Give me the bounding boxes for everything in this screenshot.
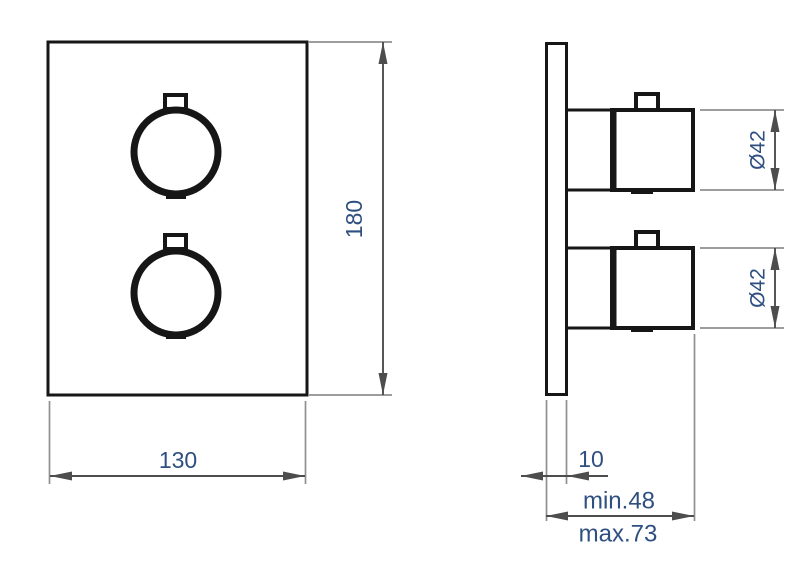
top-knob-front-bottom-notch bbox=[166, 193, 186, 199]
arrow-right-icon bbox=[672, 512, 694, 521]
depth-max-label: max.73 bbox=[579, 520, 658, 547]
arrow-left-icon bbox=[567, 472, 589, 481]
wall-plate-profile bbox=[547, 44, 567, 395]
front-width-label: 130 bbox=[159, 447, 197, 473]
bottom-knob-side-bottom-notch bbox=[631, 326, 653, 332]
front-width-dimension: 130 bbox=[50, 401, 306, 484]
technical-drawing-canvas: 130 180 bbox=[0, 0, 800, 567]
arrow-up-icon bbox=[771, 110, 780, 132]
arrow-down-icon bbox=[379, 373, 388, 395]
front-height-label: 180 bbox=[341, 200, 367, 238]
depth-min-label: min.48 bbox=[583, 487, 655, 514]
bottom-knob-front-tab bbox=[165, 235, 186, 249]
arrow-down-icon bbox=[771, 168, 780, 190]
front-height-dimension: 180 bbox=[309, 42, 392, 395]
bottom-knob-side-profile bbox=[612, 248, 693, 328]
bottom-knob-side-tab bbox=[636, 232, 658, 248]
top-knob-diameter-dimension: Ø42 bbox=[700, 110, 784, 190]
shower-valve-dimension-drawing: 130 180 bbox=[0, 0, 800, 567]
plate-thickness-label: 10 bbox=[578, 446, 604, 472]
arrow-left-icon bbox=[521, 472, 543, 481]
arrow-up-icon bbox=[379, 42, 388, 64]
bottom-knob-diameter-label: Ø42 bbox=[746, 268, 769, 308]
arrow-right-icon bbox=[283, 472, 305, 481]
bottom-knob-front-bottom-notch bbox=[166, 333, 186, 339]
arrow-left-icon bbox=[546, 512, 568, 521]
arrow-left-icon bbox=[50, 472, 72, 481]
top-knob-diameter-label: Ø42 bbox=[746, 130, 769, 170]
top-knob-side-bottom-notch bbox=[631, 188, 653, 194]
top-knob-side-tab bbox=[636, 94, 658, 110]
installation-depth-dimension: min.48 max.73 bbox=[546, 334, 695, 547]
bottom-knob-diameter-dimension: Ø42 bbox=[700, 248, 784, 328]
front-view bbox=[48, 42, 307, 395]
bottom-knob-neck bbox=[567, 248, 612, 328]
arrow-up-icon bbox=[771, 248, 780, 270]
arrow-down-icon bbox=[771, 306, 780, 328]
side-view bbox=[547, 44, 694, 395]
top-knob-neck bbox=[567, 110, 612, 190]
top-knob-side-profile bbox=[612, 110, 693, 190]
